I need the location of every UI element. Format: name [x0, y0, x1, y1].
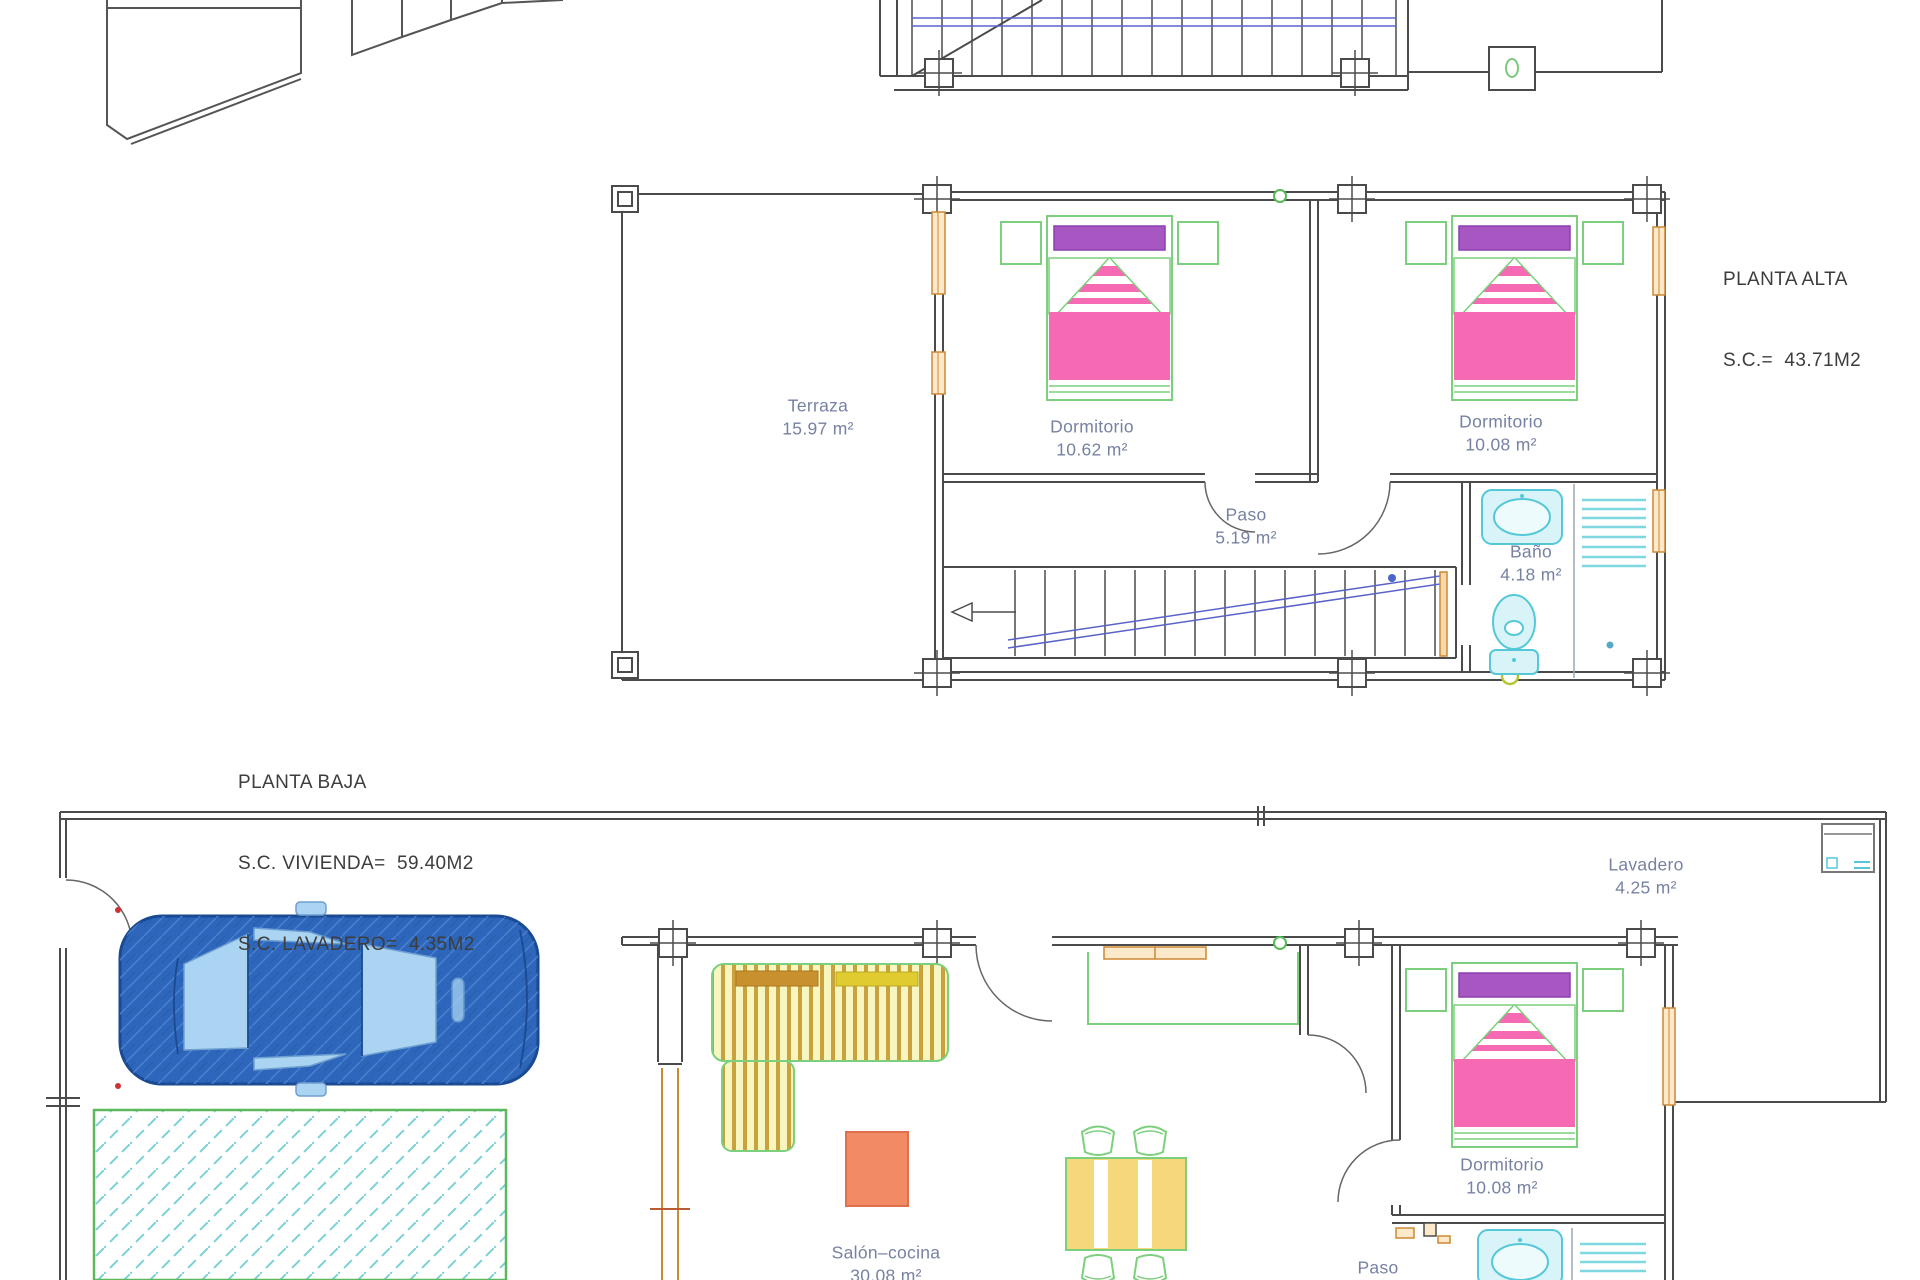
- planta-baja-vivienda-line: S.C. VIVIENDA= 59.40M2: [238, 851, 475, 878]
- ground-bathroom-fixtures: [1478, 1228, 1646, 1280]
- chair: [1134, 1255, 1166, 1280]
- floor-plan-drawing: [0, 0, 1920, 1280]
- vent-circle-icon: [1274, 190, 1286, 202]
- coffee-table: [846, 1132, 908, 1206]
- stair-marker-dot: [1388, 574, 1396, 582]
- planta-alta-title-line1: PLANTA ALTA: [1723, 267, 1861, 294]
- chair: [1082, 1255, 1114, 1280]
- planta-baja-title: PLANTA BAJA S.C. VIVIENDA= 59.40M2 S.C. …: [238, 716, 475, 986]
- drain-dot: [1607, 642, 1614, 649]
- sofa: [712, 964, 948, 1151]
- house-door-arcs: [976, 945, 1400, 1202]
- room-label-bano: Baño 4.18 m²: [1500, 540, 1561, 586]
- room-label-dormitorio-ground: Dormitorio 10.08 m²: [1460, 1153, 1544, 1199]
- upper-staircase: [952, 570, 1447, 656]
- room-label-dormitorio-2: Dormitorio 10.08 m²: [1459, 410, 1543, 456]
- bed-dormitorio-ground: [1406, 963, 1623, 1147]
- vent-circle-icon: [1274, 937, 1286, 949]
- car-corner-mark: [115, 907, 121, 913]
- entrance-door-arc: [66, 880, 132, 946]
- planta-alta-title: PLANTA ALTA S.C.= 43.71M2: [1723, 213, 1861, 402]
- room-label-lavadero: Lavadero 4.25 m²: [1608, 853, 1683, 899]
- toilet-icon: [1490, 595, 1538, 674]
- bed-dormitorio-2: [1406, 216, 1623, 400]
- planta-baja-lavadero-line: S.C. LAVADERO= 4.35M2: [238, 932, 475, 959]
- terrace-corner-markers: [612, 186, 638, 678]
- staircase-fragment: [880, 0, 1662, 96]
- sink-icon: [1494, 499, 1550, 535]
- washing-machine-icon: [1822, 824, 1874, 872]
- shower-icon: [1582, 500, 1646, 566]
- room-label-terraza: Terraza 15.97 m²: [782, 394, 853, 440]
- planta-alta-area-line: S.C.= 43.71M2: [1723, 348, 1861, 375]
- shower-icon: [1580, 1244, 1646, 1271]
- kitchen-counter: [1088, 952, 1298, 1024]
- planta-baja-title-line1: PLANTA BAJA: [238, 770, 475, 797]
- sink-icon: [1492, 1244, 1548, 1280]
- dining-table: [1066, 1158, 1186, 1250]
- room-label-dormitorio-1: Dormitorio 10.62 m²: [1050, 415, 1134, 461]
- pool-hatch-area: [94, 1110, 506, 1280]
- room-label-paso-alta: Paso 5.19 m²: [1215, 503, 1276, 549]
- car-corner-mark: [115, 1083, 121, 1089]
- bed-dormitorio-1: [1001, 216, 1218, 400]
- floor-plan-canvas: PLANTA ALTA S.C.= 43.71M2 PLANTA BAJA S.…: [0, 0, 1920, 1280]
- room-label-paso-baja: Paso: [1357, 1257, 1398, 1280]
- room-label-salon-cocina: Salón–cocina 30.08 m²: [832, 1241, 941, 1280]
- stair-direction-arrow-icon: [952, 603, 972, 621]
- elevation-fragment: [107, 0, 563, 144]
- chair: [1082, 1127, 1114, 1156]
- chair: [1134, 1127, 1166, 1156]
